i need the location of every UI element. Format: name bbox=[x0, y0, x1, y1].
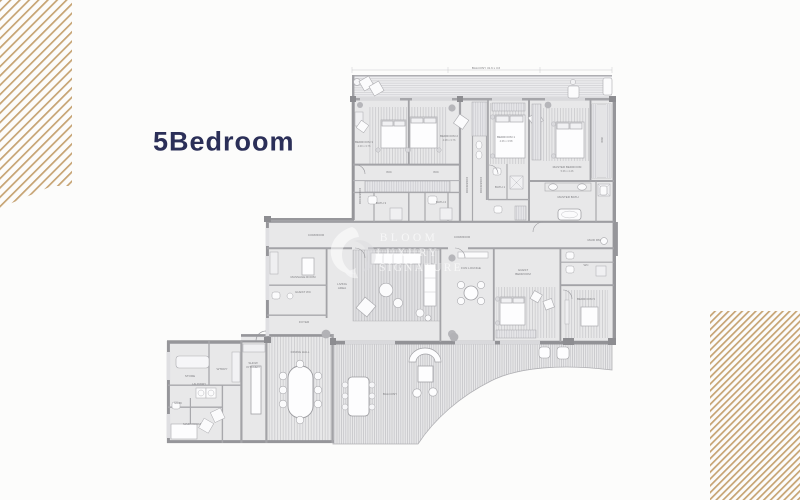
svg-text:4.06 x 3.58: 4.06 x 3.58 bbox=[500, 139, 513, 143]
svg-text:5.06 x 4.46: 5.06 x 4.46 bbox=[561, 169, 574, 173]
svg-text:FUN LOUNGE: FUN LOUNGE bbox=[461, 266, 481, 270]
svg-text:STORE: STORE bbox=[185, 374, 195, 378]
svg-text:WIC: WIC bbox=[600, 137, 604, 144]
svg-text:GUEST WC: GUEST WC bbox=[295, 290, 312, 294]
svg-text:BALCONY: BALCONY bbox=[383, 392, 397, 396]
svg-text:MASSAGE ROOM: MASSAGE ROOM bbox=[290, 275, 316, 279]
svg-text:CORRIDOR: CORRIDOR bbox=[308, 233, 325, 237]
svg-text:BLOOM: BLOOM bbox=[380, 232, 439, 244]
svg-text:FOYER: FOYER bbox=[299, 320, 310, 324]
svg-text:MAID: MAID bbox=[174, 401, 182, 405]
svg-text:KITCHEN: KITCHEN bbox=[246, 365, 259, 369]
svg-text:WIC: WIC bbox=[386, 170, 393, 174]
svg-text:BATH 3: BATH 3 bbox=[376, 201, 387, 205]
svg-text:LUXURY: LUXURY bbox=[377, 247, 440, 259]
svg-text:BATH 1: BATH 1 bbox=[495, 185, 506, 189]
svg-text:MASTER BATH: MASTER BATH bbox=[557, 195, 578, 199]
svg-text:CORRIDOR: CORRIDOR bbox=[465, 177, 469, 194]
svg-text:BEDROOM 5: BEDROOM 5 bbox=[577, 297, 595, 301]
svg-text:WC: WC bbox=[584, 263, 590, 267]
svg-text:BATH 2: BATH 2 bbox=[436, 200, 447, 204]
svg-text:MAID ROOM: MAID ROOM bbox=[183, 422, 201, 426]
svg-text:4.00 x 3.76: 4.00 x 3.76 bbox=[358, 144, 371, 148]
svg-text:DINING HALL: DINING HALL bbox=[291, 350, 310, 354]
svg-text:WTDRY: WTDRY bbox=[217, 367, 228, 371]
svg-text:AREA: AREA bbox=[338, 286, 346, 290]
svg-text:BEDROOM 2: BEDROOM 2 bbox=[440, 134, 458, 138]
svg-text:SIGNATURE: SIGNATURE bbox=[379, 262, 463, 274]
svg-text:BALCONY 31.6 x 3.6: BALCONY 31.6 x 3.6 bbox=[472, 66, 501, 70]
svg-text:4.08 x 3.76: 4.08 x 3.76 bbox=[443, 138, 456, 142]
svg-text:BEDROOM 3: BEDROOM 3 bbox=[355, 140, 373, 144]
svg-text:WIC: WIC bbox=[433, 170, 440, 174]
svg-text:MAID RM: MAID RM bbox=[588, 238, 602, 242]
svg-text:CORRIDOR: CORRIDOR bbox=[454, 235, 471, 239]
svg-text:CORRIDOR: CORRIDOR bbox=[479, 177, 483, 194]
svg-text:CORRIDOR: CORRIDOR bbox=[358, 188, 362, 205]
svg-text:MASTER BEDROOM: MASTER BEDROOM bbox=[553, 165, 582, 169]
svg-text:BEDROOM 1: BEDROOM 1 bbox=[497, 135, 515, 139]
svg-text:BEDROOM: BEDROOM bbox=[515, 272, 531, 276]
svg-text:LAUNDRY: LAUNDRY bbox=[192, 382, 206, 386]
svg-text:5Bedroom: 5Bedroom bbox=[153, 127, 295, 157]
